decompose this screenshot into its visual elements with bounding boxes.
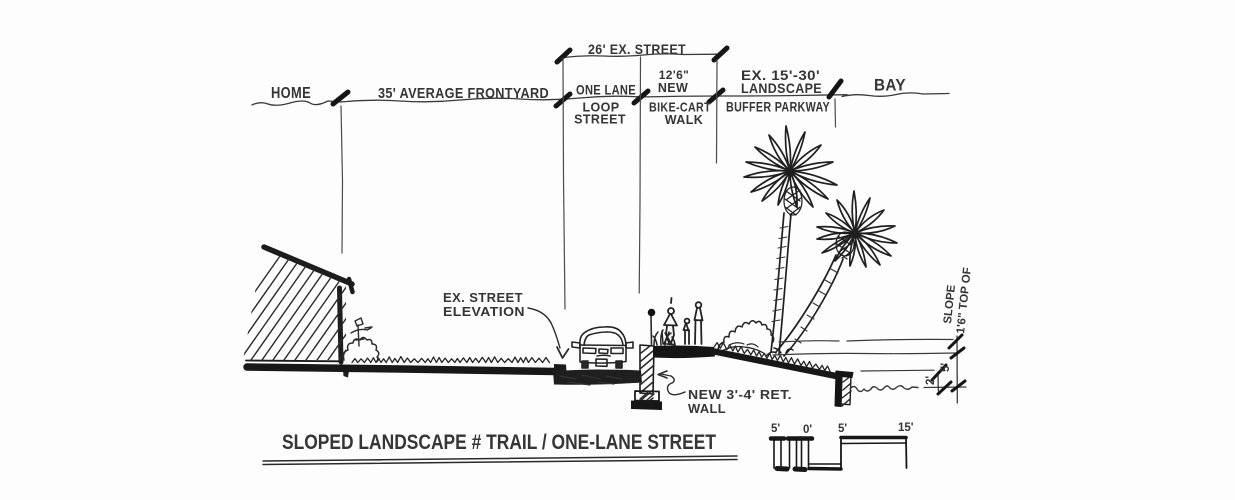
svg-text:12'6": 12'6" <box>659 68 690 82</box>
svg-text:NEW 3'-4' RET.: NEW 3'-4' RET. <box>688 387 792 402</box>
svg-text:ELEVATION: ELEVATION <box>443 304 525 319</box>
svg-text:2': 2' <box>925 376 937 385</box>
svg-text:35' AVERAGE FRONTYARD: 35' AVERAGE FRONTYARD <box>378 85 549 102</box>
svg-text:1'6" TOP OF: 1'6" TOP OF <box>955 267 974 334</box>
svg-text:5': 5' <box>838 423 847 435</box>
svg-text:WALK: WALK <box>665 113 703 127</box>
svg-text:BUFFER PARKWAY: BUFFER PARKWAY <box>726 100 830 115</box>
svg-text:5': 5' <box>940 363 952 372</box>
svg-text:15': 15' <box>898 422 914 434</box>
svg-text:WALL: WALL <box>688 401 726 416</box>
svg-text:HOME: HOME <box>271 85 311 102</box>
svg-text:5': 5' <box>771 423 780 435</box>
svg-text:LANDSCAPE: LANDSCAPE <box>741 80 822 96</box>
svg-text:STREET: STREET <box>574 113 626 127</box>
svg-text:0': 0' <box>803 424 812 436</box>
svg-text:NEW: NEW <box>658 81 688 95</box>
svg-text:26' EX. STREET: 26' EX. STREET <box>588 41 686 57</box>
svg-text:EX. STREET: EX. STREET <box>443 290 523 305</box>
svg-text:ONE LANE: ONE LANE <box>576 83 636 98</box>
svg-text:SLOPED LANDSCAPE # TRAIL / ONE: SLOPED LANDSCAPE # TRAIL / ONE-LANE STRE… <box>282 431 716 454</box>
svg-text:BAY: BAY <box>874 77 906 95</box>
